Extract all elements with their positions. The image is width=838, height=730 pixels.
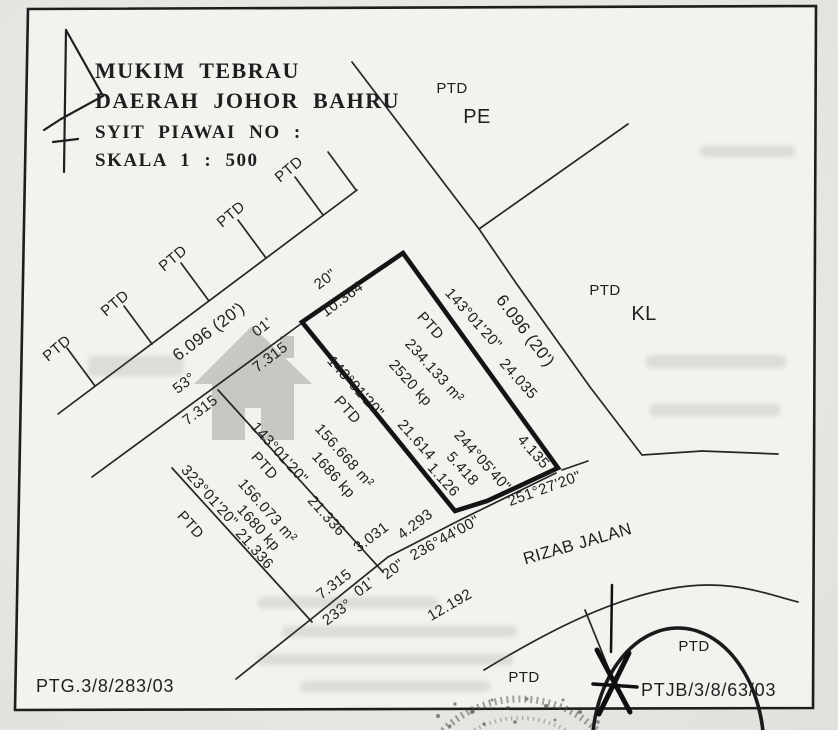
title-skala: SKALA 1 : 500 — [95, 150, 259, 171]
ref-number-left: PTG.3/8/283/03 — [36, 676, 174, 696]
label-region-kl: KL — [631, 303, 656, 325]
label-ptd-kl: PTD — [589, 282, 620, 299]
label-ptd-se: PTD — [678, 638, 709, 655]
scanned-survey-plan: MUKIM TEBRAU DAERAH JOHOR BAHRU SYIT PIA… — [0, 0, 838, 730]
bleed-smudge — [700, 146, 795, 157]
ref-number-right: PTJB/3/8/63/03 — [641, 680, 776, 700]
label-region-pe: PE — [463, 106, 490, 128]
label-ptd-stamp: PTD — [508, 669, 539, 686]
label-ptd-pe: PTD — [436, 80, 467, 97]
bleed-smudge — [300, 681, 490, 692]
bleed-smudge — [258, 654, 513, 665]
title-mukim: MUKIM TEBRAU — [95, 58, 300, 83]
title-daerah: DAERAH JOHOR BAHRU — [95, 88, 400, 113]
bleed-smudge — [646, 355, 786, 368]
bleed-smudge — [650, 404, 780, 416]
title-syit: SYIT PIAWAI NO : — [95, 122, 302, 143]
bleed-smudge — [88, 356, 183, 376]
bleed-smudge — [258, 597, 438, 608]
bleed-smudge — [282, 626, 517, 637]
